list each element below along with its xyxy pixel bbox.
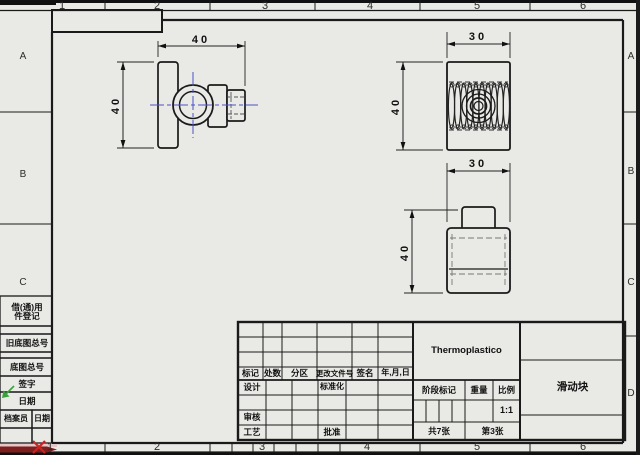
- tb-qty-label: 处数: [263, 367, 282, 380]
- svg-text:30: 30: [469, 31, 487, 43]
- tb-change-doc-label: 更改文件号: [317, 367, 352, 380]
- zone-bottom-1: 1: [47, 442, 53, 453]
- tb-review-label: 审核: [238, 410, 266, 425]
- zone-top-3: 3: [262, 1, 268, 12]
- margin-date-label: 日期: [2, 393, 52, 409]
- tb-standardize-label: 标准化: [318, 380, 346, 395]
- view-top[interactable]: [150, 62, 258, 148]
- view-front[interactable]: [447, 207, 510, 293]
- svg-text:40: 40: [390, 97, 402, 115]
- tb-zone-label: 分区: [282, 367, 317, 380]
- tb-mark-label: 标记: [238, 367, 263, 380]
- margin-old-base-no-label: 旧底图总号: [2, 335, 52, 351]
- zone-left-c: C: [19, 278, 26, 288]
- zone-top-5: 5: [474, 1, 480, 12]
- zone-top-1: 1: [59, 1, 65, 12]
- zone-bottom-2: 2: [154, 442, 160, 453]
- tb-sheet-num-value: 第3张: [465, 422, 520, 440]
- tb-date-label: 年,月,日: [378, 367, 413, 380]
- view-section-spring[interactable]: [447, 62, 510, 150]
- dim-top-view-height[interactable]: 40: [110, 62, 154, 148]
- margin-archive-date-label: 日期: [32, 411, 52, 427]
- tb-design-label: 设计: [238, 380, 266, 395]
- margin-base-no-label: 底图总号: [2, 359, 52, 375]
- zone-bottom-6: 6: [580, 442, 586, 453]
- svg-text:40: 40: [192, 34, 210, 46]
- dim-section-view-width[interactable]: 30: [447, 31, 510, 58]
- zone-right-a: A: [628, 52, 635, 62]
- zone-left-b: B: [20, 170, 27, 180]
- zone-left-a: A: [20, 52, 27, 62]
- tb-weight-label: 重量: [465, 380, 493, 400]
- zone-bottom-3: 3: [259, 442, 265, 453]
- zone-top-6: 6: [580, 1, 586, 12]
- zone-top-4: 4: [367, 1, 373, 12]
- zone-bottom-5: 5: [474, 442, 480, 453]
- tb-scale-label: 比例: [493, 380, 520, 400]
- tb-stage-mark-label: 阶段标记: [413, 380, 465, 400]
- zone-right-c: C: [627, 278, 634, 288]
- tb-scale-value: 1:1: [493, 400, 520, 422]
- margin-sign-label: 签字: [2, 377, 52, 391]
- margin-archivist-label: 档案员: [0, 411, 32, 427]
- svg-text:30: 30: [469, 158, 487, 170]
- svg-text:40: 40: [110, 96, 122, 114]
- tb-part-name: 滑动块: [520, 360, 625, 415]
- tb-approve-label: 批准: [318, 425, 346, 440]
- tb-sheets-total-value: 共7张: [413, 422, 465, 440]
- tb-material-value: Thermoplastico: [413, 322, 520, 380]
- zone-bottom-4: 4: [364, 442, 370, 453]
- borrowed-line2: 件登记: [14, 312, 40, 321]
- tb-sign-label: 签名: [352, 367, 378, 380]
- zone-top-2: 2: [154, 1, 160, 12]
- drawing-sheet: 40 40: [0, 0, 640, 455]
- margin-borrowed-parts-label: 借(通)用 件登记: [2, 298, 52, 325]
- zone-right-b: B: [628, 167, 635, 177]
- tb-process-label: 工艺: [238, 425, 266, 440]
- svg-text:40: 40: [399, 243, 411, 261]
- zone-right-d: D: [627, 389, 634, 399]
- dim-section-view-height[interactable]: 40: [390, 62, 443, 150]
